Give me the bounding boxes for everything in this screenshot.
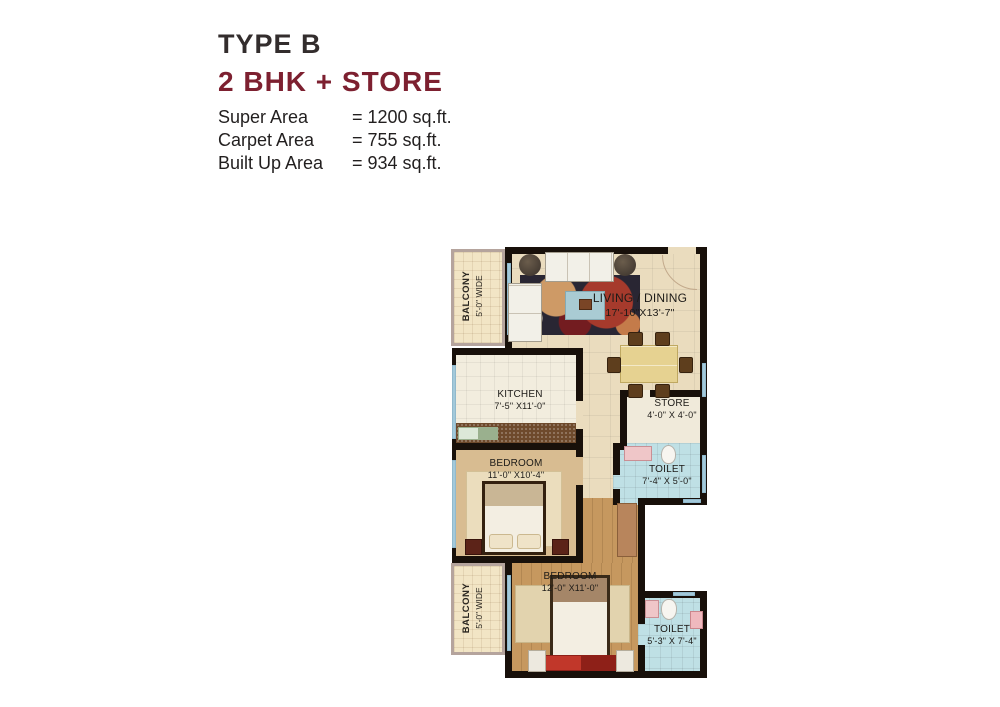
room-dim: 7'-5" X11'-0" — [468, 401, 572, 413]
dining-chair — [655, 384, 670, 398]
area-row-builtup: Built Up Area = 934 sq.ft. — [218, 152, 538, 175]
dining-chair — [628, 332, 643, 346]
kitchen-sink — [458, 427, 498, 440]
room-label-toilet-1: TOILET 7'-4" X 5'-0" — [632, 463, 702, 488]
toilet2-cistern — [645, 600, 659, 618]
side-table-left — [519, 254, 541, 276]
room-dim: 4'-0" X 4'-0" — [640, 410, 704, 422]
wall-toilet2-left-a — [638, 598, 645, 624]
corridor-dresser — [617, 503, 637, 557]
bedroom1-pillow — [517, 534, 541, 549]
floor-plan: LIVING / DINING 17'-10"X13'-7" KITCHEN 7… — [448, 233, 714, 685]
room-name: BALCONY — [461, 563, 474, 653]
area-value: = 934 sq.ft. — [352, 152, 442, 175]
wall-kitchen-bottom — [452, 443, 583, 450]
brochure-page: TYPE B 2 BHK + STORE Super Area = 1200 s… — [0, 0, 1000, 707]
room-label-bedroom-2: BEDROOM 12'-0" X11'-0" — [518, 570, 622, 595]
room-name: STORE — [640, 397, 704, 410]
window-toilet1-bottom — [683, 499, 701, 503]
toilet1-bathtub — [624, 446, 652, 461]
room-name: KITCHEN — [468, 388, 572, 401]
window-balcony-bottom — [507, 575, 511, 651]
window-toilet2-top — [673, 592, 695, 596]
area-label: Carpet Area — [218, 129, 352, 152]
room-name: BEDROOM — [518, 570, 622, 583]
area-value: = 1200 sq.ft. — [352, 106, 452, 129]
sofa-two-seater — [508, 283, 542, 342]
room-label-toilet-2: TOILET 5'-3" X 7'-4" — [640, 623, 704, 648]
wall-void-left — [638, 498, 645, 598]
bedroom2-bench — [545, 655, 618, 671]
room-name: BALCONY — [461, 251, 474, 341]
room-dim: 11'-0" X10'-4" — [466, 470, 566, 482]
kitchen-door-gap — [576, 401, 583, 429]
wall-kitchen-right — [576, 348, 583, 450]
dining-table — [620, 345, 678, 383]
room-dim: 17'-10"X13'-7" — [582, 307, 698, 321]
room-label-store: STORE 4'-0" X 4'-0" — [640, 397, 704, 422]
room-label-bedroom-1: BEDROOM 11'-0" X10'-4" — [466, 457, 566, 482]
area-list: Super Area = 1200 sq.ft. Carpet Area = 7… — [218, 106, 538, 175]
nightstand — [465, 539, 482, 555]
bedroom1-pillow — [489, 534, 513, 549]
dining-chair — [628, 384, 643, 398]
room-name: TOILET — [640, 623, 704, 636]
entrance-door-gap — [668, 247, 696, 254]
room-label-balcony-bottom: BALCONY 5'-0" WIDE — [461, 563, 495, 653]
bedroom1-door-gap — [576, 457, 583, 485]
room-name: TOILET — [632, 463, 702, 476]
toilet1-washbasin — [661, 445, 676, 464]
room-dim: 5'-0" WIDE — [474, 251, 485, 341]
type-title: TYPE B — [218, 28, 538, 60]
wall-store-left — [620, 390, 627, 450]
area-label: Super Area — [218, 106, 352, 129]
room-dim: 12'-0" X11'-0" — [518, 583, 622, 595]
bedside-stool — [616, 650, 634, 672]
toilet2-wc — [661, 599, 677, 620]
window-toilet1-right — [702, 455, 706, 493]
bedside-stool — [528, 650, 546, 672]
wall-bedroom1-bottom — [452, 556, 583, 563]
window-living-right — [702, 363, 706, 397]
wall-bottom — [505, 671, 707, 678]
room-name: BEDROOM — [466, 457, 566, 470]
room-label-kitchen: KITCHEN 7'-5" X11'-0" — [468, 388, 572, 413]
area-label: Built Up Area — [218, 152, 352, 175]
config-title: 2 BHK + STORE — [218, 66, 538, 98]
area-row-carpet: Carpet Area = 755 sq.ft. — [218, 129, 538, 152]
wall-toilet2-left-b — [638, 645, 645, 678]
plan-header: TYPE B 2 BHK + STORE Super Area = 1200 s… — [218, 28, 538, 175]
sofa-three-seater — [545, 252, 614, 282]
nightstand — [552, 539, 569, 555]
room-dim: 5'-0" WIDE — [474, 563, 485, 653]
room-label-balcony-top: BALCONY 5'-0" WIDE — [461, 251, 495, 341]
side-table-right — [614, 254, 636, 276]
room-dim: 5'-3" X 7'-4" — [640, 636, 704, 648]
area-row-super: Super Area = 1200 sq.ft. — [218, 106, 538, 129]
room-name: LIVING / DINING — [582, 291, 698, 307]
wall-toilet1-left-a — [613, 443, 620, 475]
dining-chair — [679, 357, 693, 373]
bedroom1-blanket — [485, 484, 543, 506]
dining-chair — [655, 332, 670, 346]
area-value: = 755 sq.ft. — [352, 129, 442, 152]
window-bedroom1-left — [452, 460, 456, 548]
dining-chair — [607, 357, 621, 373]
room-label-living-dining: LIVING / DINING 17'-10"X13'-7" — [582, 291, 698, 320]
room-dim: 7'-4" X 5'-0" — [632, 476, 702, 488]
wall-kitchen-top — [452, 348, 583, 355]
